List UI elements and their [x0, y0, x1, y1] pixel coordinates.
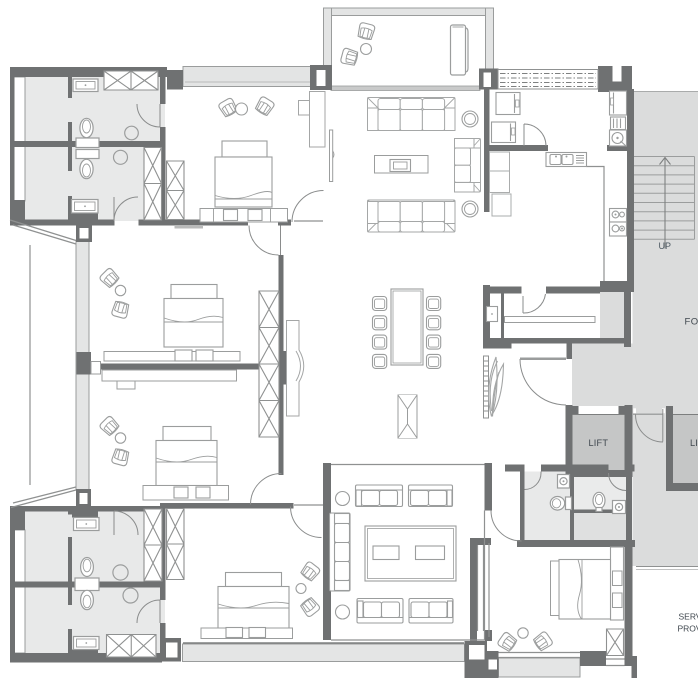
svg-text:FOYER: FOYER [685, 317, 698, 328]
svg-text:LIFT: LIFT [589, 438, 609, 448]
svg-text:SERVICES: SERVICES [679, 612, 698, 622]
svg-text:UP: UP [659, 241, 672, 251]
svg-text:LIFT: LIFT [690, 438, 698, 448]
svg-text:PROVISIONS: PROVISIONS [678, 624, 698, 634]
